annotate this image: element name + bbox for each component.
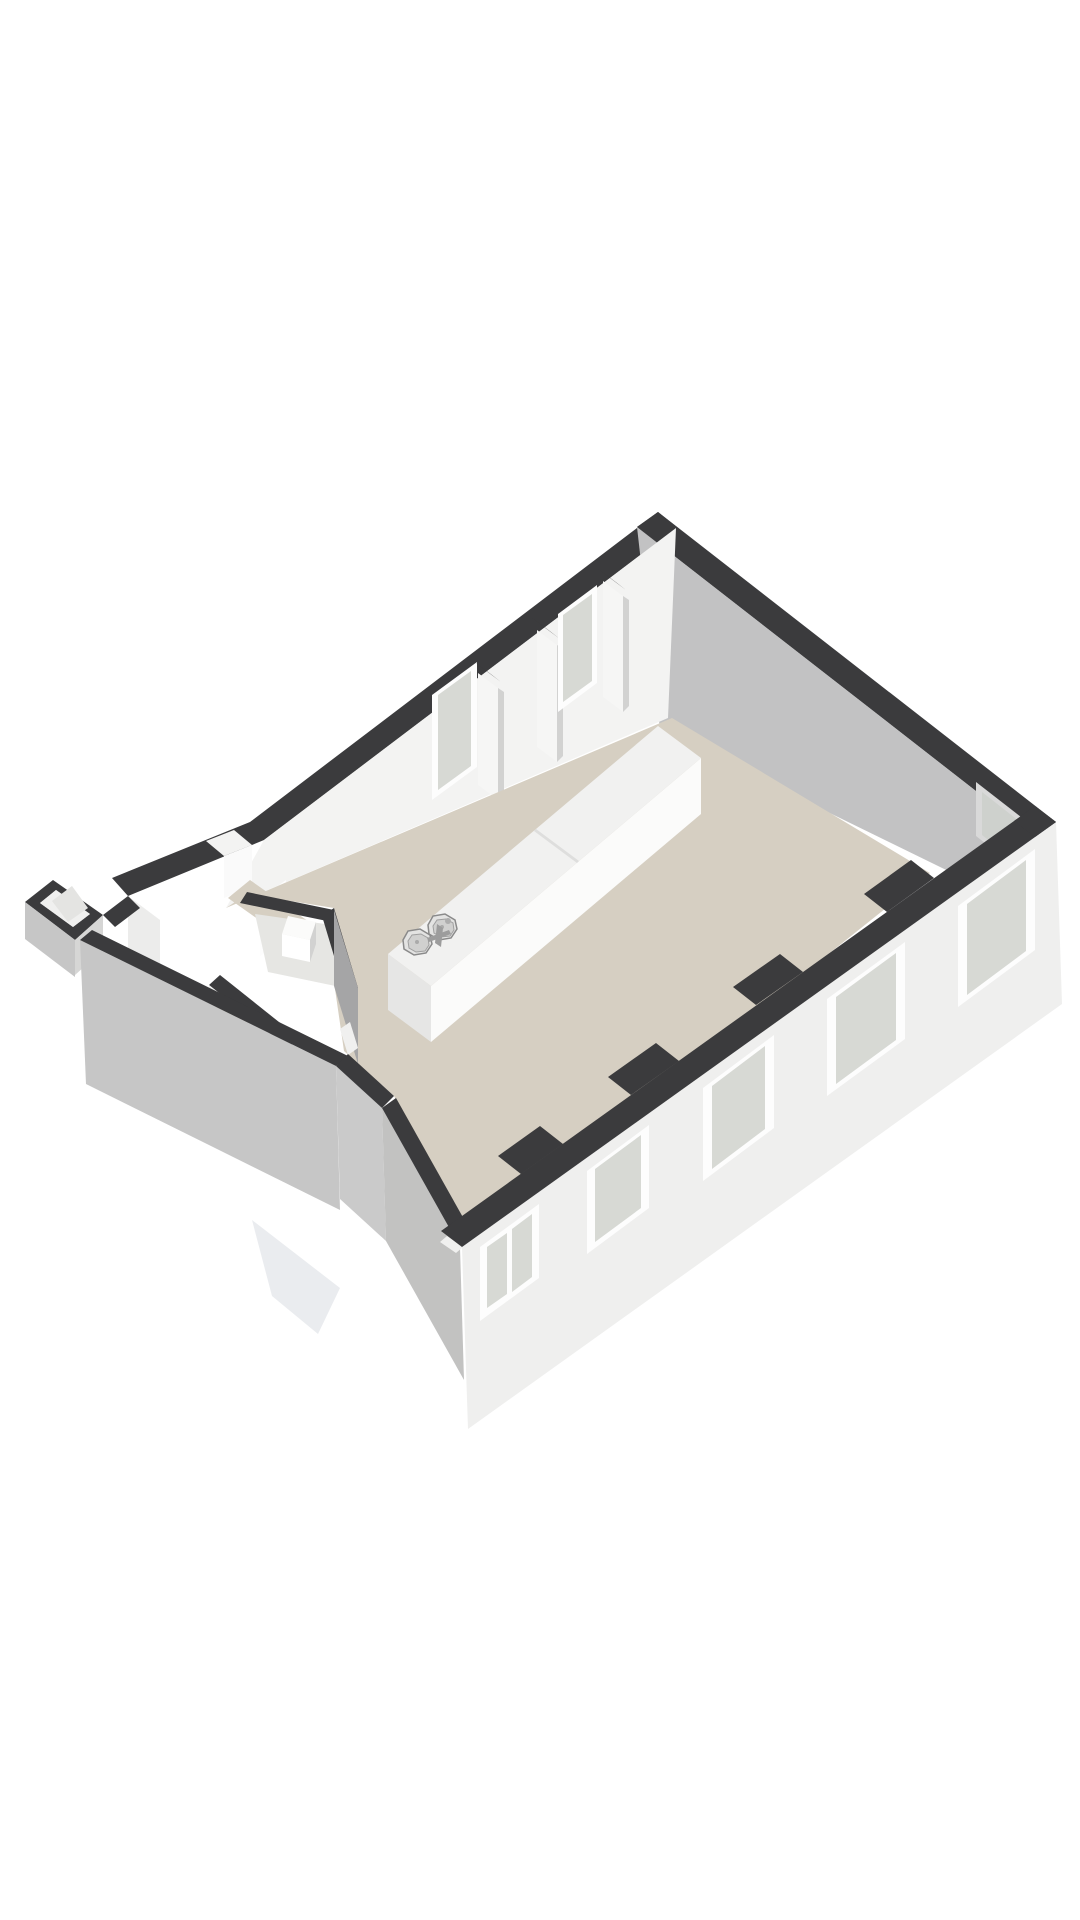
faucet-handle (445, 918, 451, 924)
pier-c-face (603, 581, 623, 712)
lower-exterior-wedge (252, 1220, 340, 1334)
pier-a-shade (498, 688, 504, 800)
pier-c-shade (623, 596, 629, 712)
pier-a-face (478, 673, 498, 800)
sink-drain-1 (415, 940, 419, 944)
floorplan-3d-render (0, 0, 1080, 1920)
pier-b-face (537, 630, 557, 762)
floorplan-page (0, 0, 1080, 1920)
sw-wall-exterior-face (80, 940, 340, 1210)
